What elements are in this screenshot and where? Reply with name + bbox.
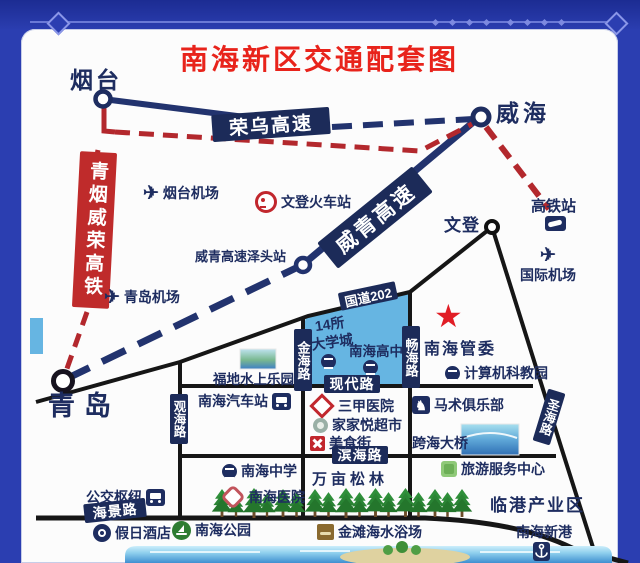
lvyou-label: 旅游服务中心 [461, 459, 545, 479]
gaozhong-label: 南海高中 [349, 344, 403, 360]
fudi-photo [240, 349, 276, 369]
mashu-label: 马术俱乐部 [434, 395, 504, 415]
jisuanji-label: 计算机科教园 [464, 363, 548, 383]
zetou-station-label: 威青高速泽头站 [195, 250, 286, 265]
airplane-icon: ✈ [143, 184, 159, 203]
food-street-icon [310, 436, 325, 451]
weihai-node [473, 109, 489, 125]
city-wendeng: 文登 [444, 216, 480, 236]
airplane-icon: ✈ [540, 246, 556, 265]
school-icon [445, 366, 460, 381]
bus-terminal: 南海汽车站 [198, 391, 291, 411]
rongwu-dashed [332, 119, 473, 127]
tourist-center: 旅游服务中心 [441, 459, 545, 479]
bridge-photo [461, 424, 519, 455]
train-icon [545, 216, 566, 231]
gongjiao-label: 公交枢纽 [86, 487, 142, 507]
yantai-airport-label: 烟台机场 [163, 183, 219, 203]
yiyuan-label: 南海医院 [249, 487, 305, 507]
middle-school: 南海中学 [222, 461, 297, 481]
yantai-node [96, 92, 111, 107]
guanhai-road-label: 观海路 [170, 394, 188, 444]
equestrian-club: ♞ 马术俱乐部 [412, 395, 504, 415]
horse-icon: ♞ [412, 396, 430, 414]
qichezhan-label: 南海汽车站 [198, 391, 268, 411]
yantai-airport: ✈ 烟台机场 [143, 183, 219, 203]
railway-icon [255, 191, 277, 213]
kuahai-bridge-label: 跨海大桥 [412, 435, 468, 451]
xingang-label: 南海新港 [516, 524, 572, 540]
food-street: 美食街 [310, 433, 371, 453]
city-yantai: 烟台 [70, 67, 122, 93]
wendeng-station-label: 文登火车站 [281, 192, 351, 212]
sanjia-label: 三甲医院 [338, 396, 394, 416]
fudi-label: 福地水上乐园 [213, 372, 294, 388]
jisuanji-park: 计算机科教园 [445, 363, 548, 383]
jiari-label: 假日酒店 [115, 523, 171, 543]
bus-icon [272, 393, 291, 410]
hotel-icon [93, 524, 111, 542]
hospital-icon [220, 484, 245, 509]
city-qingdao: 青岛 [48, 391, 120, 422]
gaotie-station-label: 高铁站 [531, 198, 576, 215]
qingdao-airport-label: 青岛机场 [124, 287, 180, 307]
city-weihai: 威海 [496, 100, 550, 126]
wendeng-station: 文登火车站 [255, 191, 351, 213]
qingdao-airport: ✈ 青岛机场 [104, 287, 180, 307]
pine-forest-label: 万亩松林 [312, 471, 388, 488]
wendeng-node [486, 221, 498, 233]
nanhai-hospital: 南海医院 [221, 487, 305, 507]
meishijie-label: 美食街 [329, 433, 371, 453]
gongyuan-label: 南海公园 [195, 520, 251, 540]
changhai-road-label: 畅海路 [402, 326, 420, 388]
holiday-hotel: 假日酒店 [93, 523, 171, 543]
lingang-zone-label: 临港产业区 [490, 496, 585, 516]
school-icon [321, 354, 336, 369]
school-icon [363, 360, 378, 375]
zetou-node [296, 258, 310, 272]
jiajiayue-label: 家家悦超市 [332, 415, 402, 435]
jinhai-road-label: 金海路 [294, 329, 312, 391]
zhongxue-label: 南海中学 [241, 461, 297, 481]
supermarket-icon [313, 418, 328, 433]
sailboat-icon [172, 521, 191, 540]
star-icon: ★ [434, 300, 463, 332]
intl-airport-label: 国际机场 [520, 267, 576, 283]
jiajiayue-market: 家家悦超市 [313, 415, 402, 435]
water-patch [30, 318, 43, 354]
anchor-icon [533, 542, 550, 561]
jintan-label: 金滩海水浴场 [338, 522, 422, 542]
tourist-center-icon [441, 461, 457, 477]
rail-to-gaotie [486, 127, 549, 209]
school-icon [222, 464, 237, 479]
golden-beach: 金滩海水浴场 [317, 522, 422, 542]
beach-icon [317, 524, 334, 540]
airplane-icon: ✈ [104, 288, 120, 307]
screenshot-root: 南海新区交通配套图 烟台 威海 青岛 文登 荣乌高速 威青高速 青烟威荣高铁 国… [0, 0, 640, 563]
sanjia-hospital: 三甲医院 [310, 396, 394, 416]
university-city-label: 14所 大学城 [308, 313, 354, 354]
bus-icon [146, 489, 165, 506]
nanhai-park: 南海公园 [172, 520, 251, 540]
transit-hub: 公交枢纽 [86, 487, 165, 507]
qingdao-node [54, 372, 73, 391]
xiandai-road-label: 现代路 [324, 375, 380, 393]
guanwei-label: 南海管委 [424, 341, 496, 359]
